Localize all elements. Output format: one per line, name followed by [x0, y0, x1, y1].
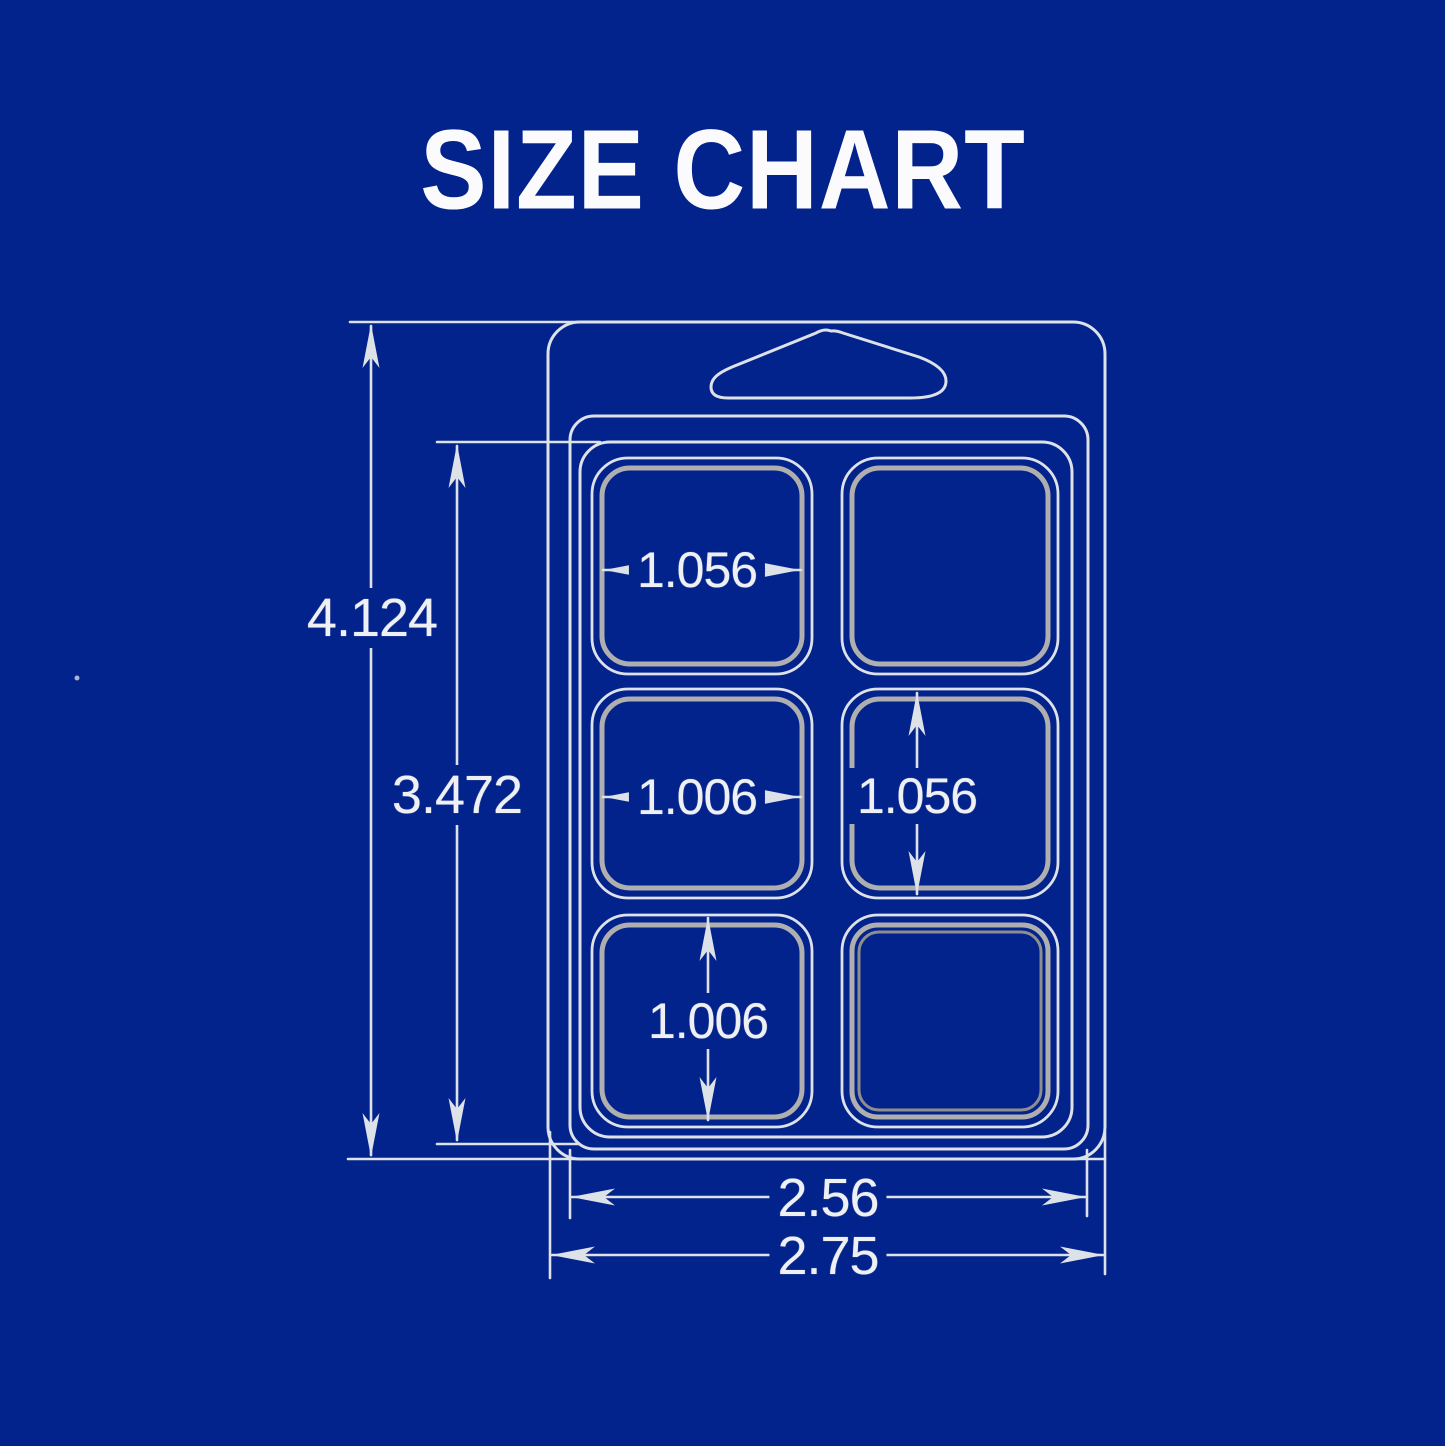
- dim-label-overall-width: 2.75: [769, 1226, 886, 1286]
- hang-tab-outline: [711, 330, 946, 398]
- dim-label-cavity-height-bottom: 1.006: [640, 993, 776, 1049]
- clamshell-outlines: [548, 322, 1105, 1159]
- dim-label-overall-height: 4.124: [299, 588, 445, 648]
- background-speck: [75, 676, 80, 681]
- dim-label-cavity-width-top: 1.056: [629, 542, 765, 598]
- dim-label-cavity-height-middle: 1.056: [849, 768, 985, 824]
- clamshell-outer-outline: [548, 322, 1105, 1159]
- dim-label-cavity-width-middle: 1.006: [629, 769, 765, 825]
- cavity-top-right: [842, 458, 1058, 674]
- page-title: SIZE CHART: [420, 114, 1025, 227]
- size-chart-diagram: SIZE CHART 4.124 3.472 1.056 1.006 1.056…: [0, 0, 1445, 1446]
- dim-label-inner-width: 2.56: [769, 1168, 886, 1228]
- dim-label-tray-height: 3.472: [384, 765, 530, 825]
- cavity-bottom-right: [842, 915, 1058, 1127]
